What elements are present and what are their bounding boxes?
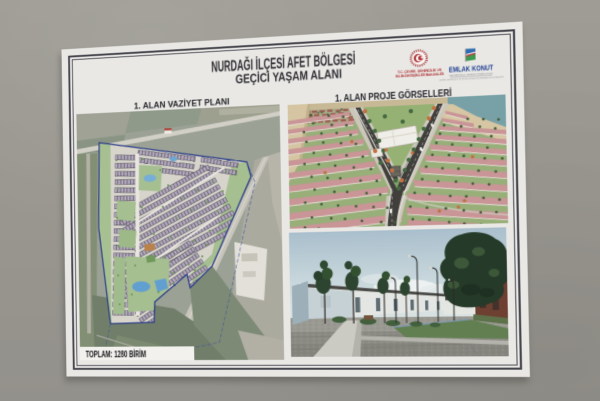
svg-text:TOPLAM: 1280 BİRİM: TOPLAM: 1280 BİRİM <box>86 349 147 360</box>
